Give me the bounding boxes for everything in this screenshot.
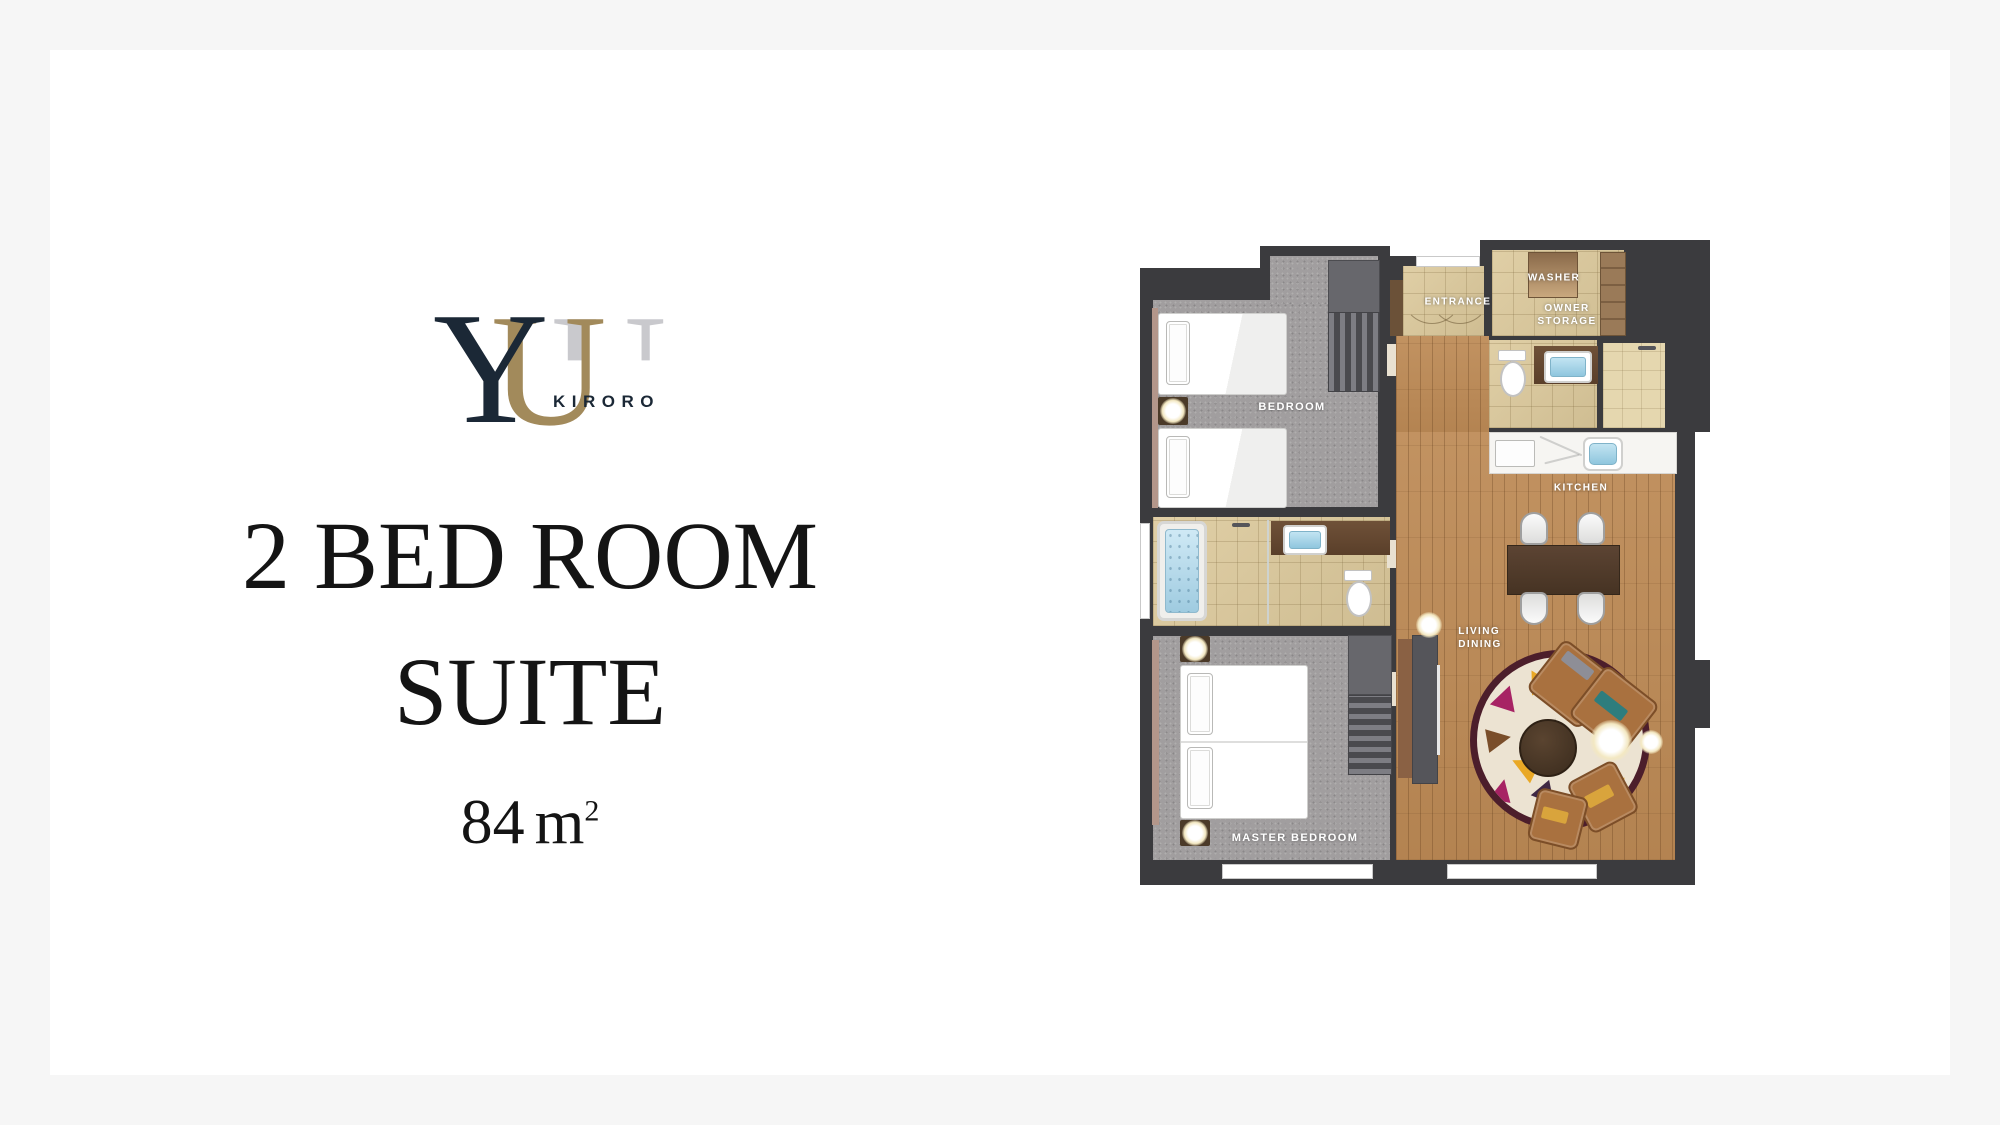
bath1-shower-fixture xyxy=(1232,523,1250,527)
bathtub-water xyxy=(1165,529,1199,613)
bedroom-bed-2-pillow xyxy=(1166,436,1190,498)
entrance-closet xyxy=(1390,280,1403,336)
rug-pattern-shard xyxy=(1490,682,1522,713)
room-label-owner-storage-line1: OWNER xyxy=(1537,302,1596,315)
floor-plan: BEDROOM ENTRANCE WASHER OWNER STORAGE KI… xyxy=(1140,240,1720,885)
title-line-2: SUITE xyxy=(110,624,950,760)
bedroom-bed-1-pillow xyxy=(1166,321,1190,385)
logo-letter-y: Y xyxy=(433,288,549,448)
area-value: 84 xyxy=(461,786,525,857)
master-pillow-2 xyxy=(1187,747,1213,809)
tv-wall-panel xyxy=(1412,635,1438,784)
living-floor-lamp xyxy=(1590,720,1632,762)
master-pillow-1 xyxy=(1187,673,1213,735)
coffee-table xyxy=(1519,719,1577,777)
bathroom2-toilet xyxy=(1500,361,1526,397)
tv-console xyxy=(1398,639,1412,778)
bathroom1-toilet-tank xyxy=(1344,570,1372,581)
armchair-1-cushion xyxy=(1584,784,1615,809)
area-superscript: 2 xyxy=(584,795,599,828)
room-label-kitchen: KITCHEN xyxy=(1554,483,1608,494)
bedroom-wardrobe xyxy=(1328,312,1380,392)
bedroom-lamp xyxy=(1160,398,1186,424)
window-master-bottom xyxy=(1222,864,1373,879)
master-lamp-2 xyxy=(1182,820,1208,846)
window-living-bottom xyxy=(1447,864,1597,879)
bathroom2-sink-basin xyxy=(1550,357,1586,377)
bathroom1-toilet xyxy=(1346,581,1372,617)
room-label-living-line1: LIVING xyxy=(1458,625,1501,638)
shower-glass-divider xyxy=(1267,520,1269,624)
bathroom2-sink xyxy=(1544,351,1592,383)
rug-pattern-shard xyxy=(1489,777,1515,803)
room-label-master-bedroom: MASTER BEDROOM xyxy=(1232,832,1359,844)
entrance-door-swing-arc-2 xyxy=(1430,264,1490,324)
logo-brand-text: KIRORO xyxy=(553,392,660,412)
room-label-living-dining: LIVING DINING xyxy=(1458,625,1501,651)
bedroom-wardrobe-top xyxy=(1328,260,1380,314)
title-line-1: 2 BED ROOM xyxy=(110,488,950,624)
dining-chair-1 xyxy=(1520,512,1548,545)
master-lamp-1 xyxy=(1182,636,1208,662)
corridor-floor xyxy=(1396,336,1489,436)
page-title: 2 BED ROOM SUITE xyxy=(110,488,950,761)
room-label-owner-storage-line2: STORAGE xyxy=(1537,315,1596,328)
living-wall-lamp xyxy=(1416,612,1442,638)
kitchen-stove xyxy=(1495,440,1535,467)
kitchen-sink xyxy=(1583,437,1623,471)
area-text: 84m2 xyxy=(110,785,950,859)
master-wardrobe-top xyxy=(1348,635,1392,695)
room-label-washer: WASHER xyxy=(1528,273,1580,284)
dining-chair-2 xyxy=(1577,512,1605,545)
storage-cabinet xyxy=(1600,252,1626,336)
room-label-bedroom: BEDROOM xyxy=(1258,401,1325,413)
window-left xyxy=(1140,523,1150,619)
shower-room-floor xyxy=(1603,343,1665,428)
bathroom2-toilet-tank xyxy=(1498,350,1526,361)
rug-pattern-shard xyxy=(1485,725,1513,753)
kitchen-sink-basin xyxy=(1589,443,1617,465)
content-card: U U Y KIRORO 2 BED ROOM SUITE 84m2 xyxy=(50,50,1950,1075)
bathroom1-sink xyxy=(1283,525,1327,555)
room-label-entrance: ENTRANCE xyxy=(1425,297,1492,308)
bathtub xyxy=(1157,521,1207,621)
armchair-2-cushion xyxy=(1541,806,1569,824)
room-label-owner-storage: OWNER STORAGE xyxy=(1537,302,1596,328)
yu-kiroro-logo: U U Y KIRORO xyxy=(433,288,693,428)
sofa-cushion-teal xyxy=(1594,690,1629,721)
living-small-lamp xyxy=(1639,730,1663,754)
master-wardrobe xyxy=(1348,695,1392,775)
room-label-living-line2: DINING xyxy=(1458,638,1501,651)
bathroom1-sink-basin xyxy=(1289,531,1321,549)
bedroom-door xyxy=(1387,344,1396,376)
dining-chair-4 xyxy=(1577,592,1605,625)
master-headboard xyxy=(1152,640,1159,825)
area-unit: m xyxy=(535,786,585,857)
tv-screen xyxy=(1437,665,1440,755)
shower-fixture xyxy=(1638,346,1656,350)
dining-table xyxy=(1507,545,1620,595)
dining-chair-3 xyxy=(1520,592,1548,625)
